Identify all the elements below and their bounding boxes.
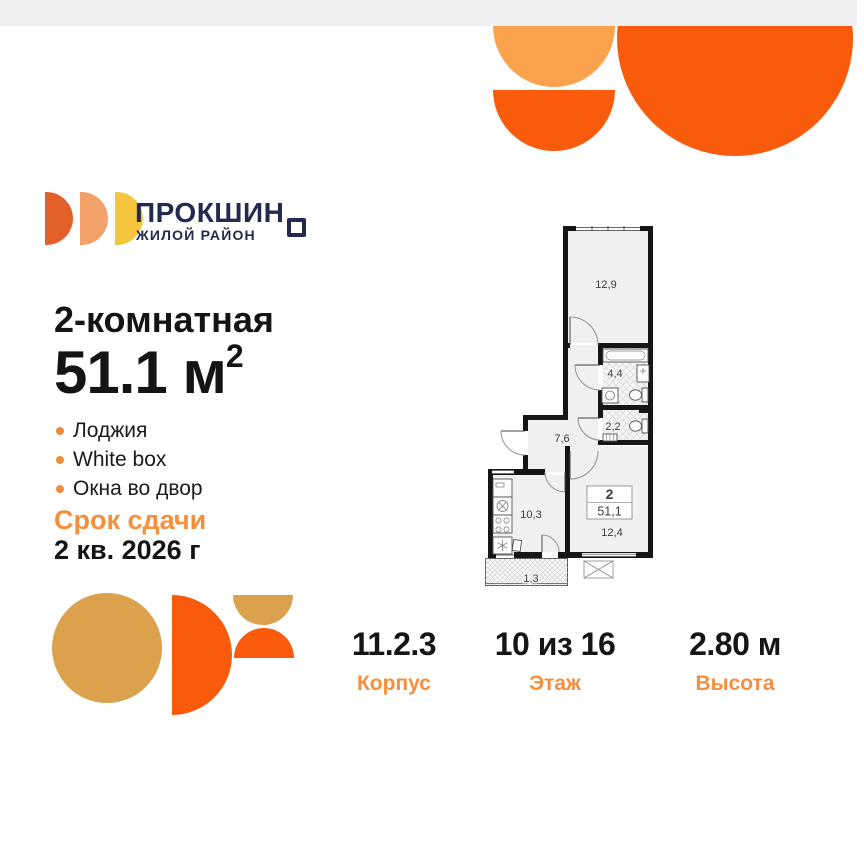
brand-arc-icon: [45, 192, 73, 245]
feature-item: Окна во двор: [56, 474, 203, 503]
listing-card: ПРОКШИНО ЖИЛОЙ РАЙОН 2-комнатная 51.1 м2…: [0, 0, 864, 864]
stat-building-label: Корпус: [352, 672, 436, 696]
stat-building-value: 11.2.3: [352, 626, 436, 663]
decor-bowl-shape: [233, 595, 293, 625]
developer-logo-circle: A101: [52, 593, 162, 703]
stat-height-label: Высота: [689, 672, 781, 696]
feature-item: Лоджия: [56, 416, 203, 445]
apartment-type-title: 2-комнатная: [54, 299, 274, 341]
label-bathroom: 4,4: [607, 368, 622, 380]
label-wc: 2,2: [605, 421, 620, 433]
bullet-icon: [56, 427, 64, 435]
label-loggia: 1,3: [523, 573, 538, 585]
stat-floor-label: Этаж: [495, 672, 616, 696]
plan-total-area: 51,1: [597, 505, 621, 519]
label-bedroom: 12,9: [595, 279, 616, 291]
decor-halfdisc-orange: [493, 90, 615, 151]
floor-plan: 2 51,1 12,9 4,4 2,2 7,6 10,3 12,4 1,3: [480, 218, 662, 594]
top-gray-band: [0, 0, 857, 26]
stat-floor-value: 10 из 16: [495, 626, 616, 663]
brand-subtitle: ЖИЛОЙ РАЙОН: [136, 227, 256, 243]
decor-d-shape: [172, 595, 232, 715]
decor-hump-shape: [234, 628, 294, 658]
deadline-value: 2 кв. 2026 г: [54, 535, 200, 566]
decor-halfdisc-light: [493, 26, 615, 87]
features-list: Лоджия White box Окна во двор: [56, 416, 203, 503]
stat-floor: 10 из 16 Этаж: [495, 626, 616, 696]
deadline-label: Срок сдачи: [54, 505, 206, 536]
brand-wordmark-text: ПРОКШИН: [135, 197, 284, 228]
stat-building: 11.2.3 Корпус: [352, 626, 436, 696]
area-superscript: 2: [226, 338, 244, 374]
feature-item: White box: [56, 445, 203, 474]
label-living: 12,4: [601, 527, 622, 539]
stat-height-value: 2.80 м: [689, 626, 781, 663]
brand-arc-icon: [80, 192, 108, 245]
apartment-area: 51.1 м2: [54, 338, 244, 407]
stat-height: 2.80 м Высота: [689, 626, 781, 696]
bullet-icon: [56, 456, 64, 464]
plan-info-box: 2 51,1: [587, 486, 632, 519]
bullet-icon: [56, 485, 64, 493]
plan-rooms-count: 2: [606, 486, 614, 502]
label-hallway: 7,6: [554, 433, 569, 445]
brand-square-o-icon: О: [287, 218, 306, 237]
label-kitchen: 10,3: [520, 509, 541, 521]
